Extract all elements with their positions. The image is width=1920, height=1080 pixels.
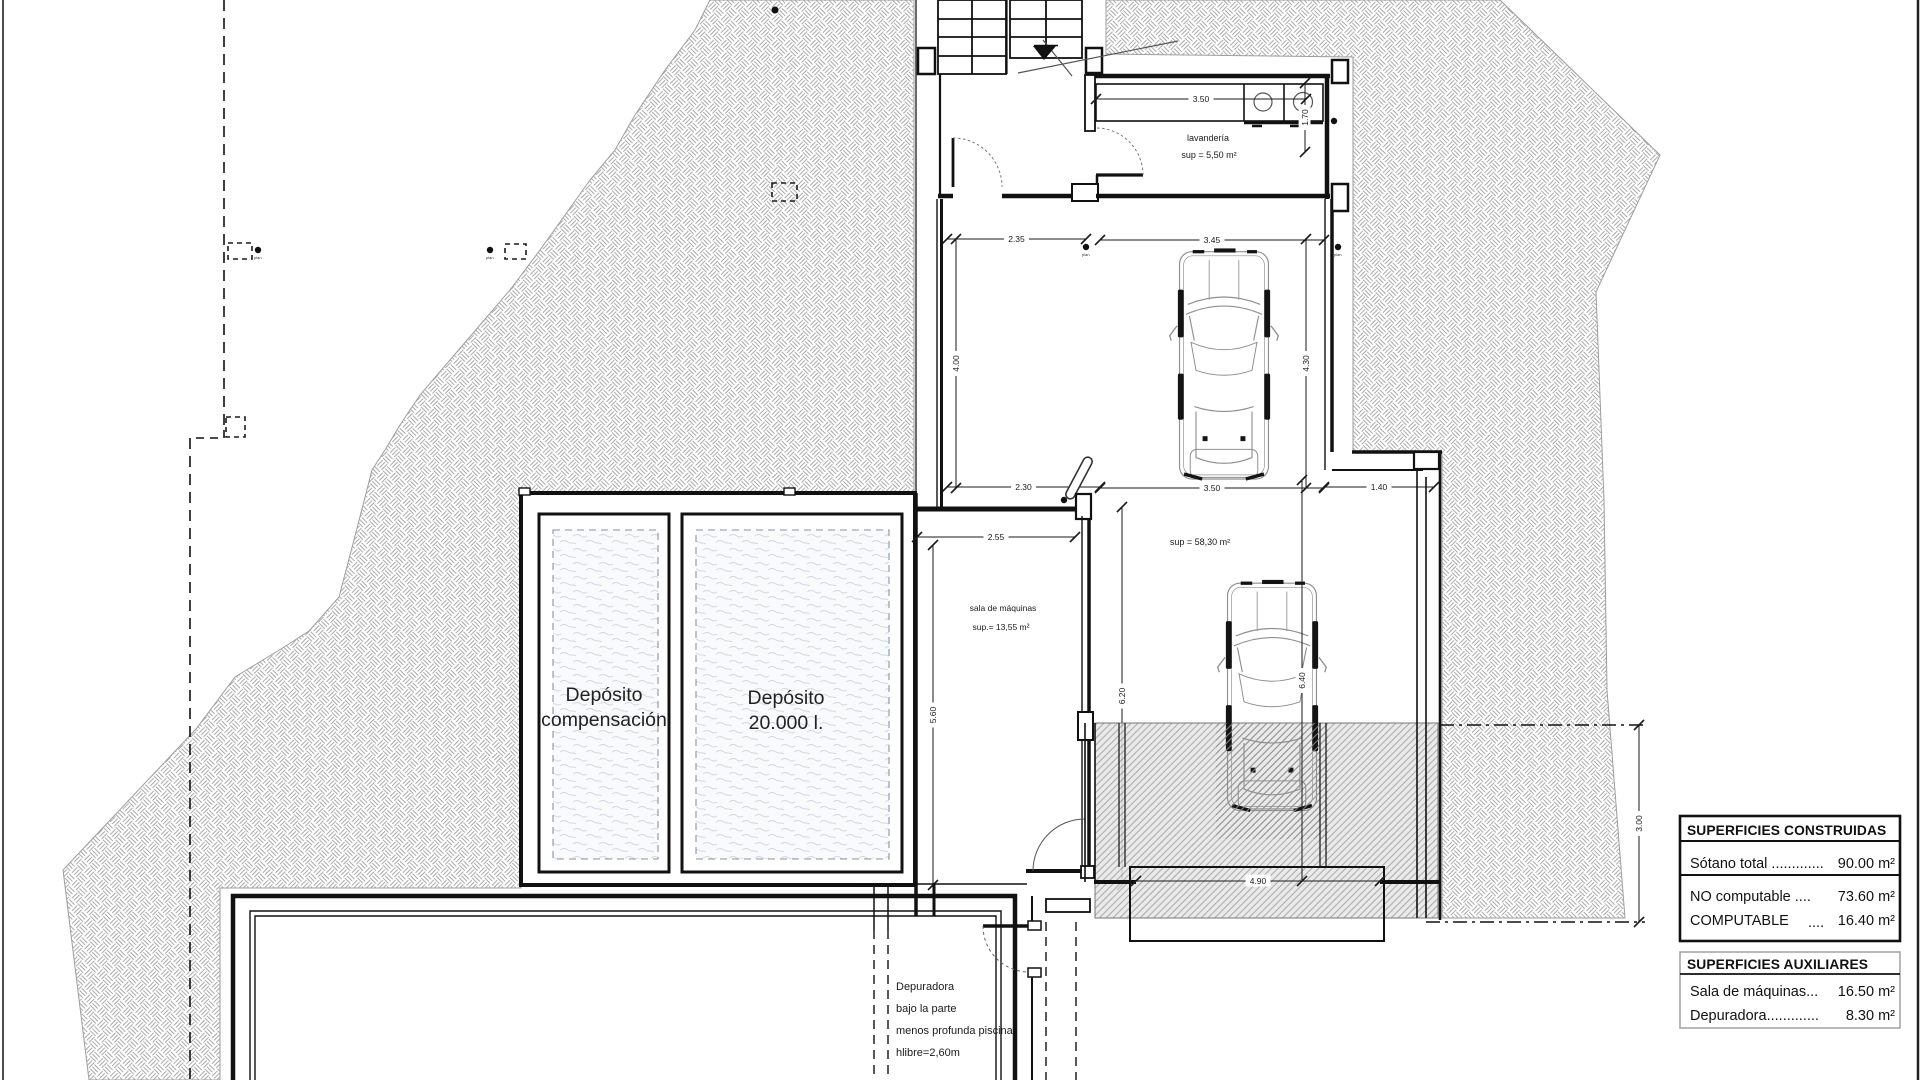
- svg-text:Sala de máquinas...: Sala de máquinas...: [1690, 984, 1818, 1000]
- svg-text:plan: plan: [1334, 252, 1342, 257]
- svg-text:4.00: 4.00: [951, 355, 961, 372]
- svg-text:COMPUTABLE: COMPUTABLE: [1690, 913, 1789, 929]
- svg-text:Depuradora.............: Depuradora.............: [1690, 1008, 1819, 1024]
- svg-text:20.000 l.: 20.000 l.: [749, 712, 824, 734]
- svg-text:Depuradora: Depuradora: [896, 981, 955, 993]
- svg-text:8.30 m²: 8.30 m²: [1846, 1008, 1895, 1024]
- svg-text:5.60: 5.60: [928, 706, 938, 723]
- svg-text:sup = 5,50 m²: sup = 5,50 m²: [1181, 150, 1236, 160]
- svg-text:lavandería: lavandería: [1187, 133, 1229, 143]
- svg-text:6.20: 6.20: [1117, 687, 1127, 704]
- svg-text:compensación: compensación: [541, 709, 667, 731]
- svg-text:plan: plan: [254, 255, 262, 260]
- svg-text:Depósito: Depósito: [566, 684, 643, 706]
- svg-text:hlibre=2,60m: hlibre=2,60m: [896, 1047, 960, 1059]
- svg-text:90.00 m²: 90.00 m²: [1838, 856, 1895, 872]
- svg-text:Sótano total .............: Sótano total .............: [1690, 856, 1824, 872]
- svg-text:16.40 m²: 16.40 m²: [1838, 913, 1895, 929]
- svg-text:6.40: 6.40: [1297, 672, 1307, 689]
- svg-text:2.55: 2.55: [988, 532, 1005, 542]
- svg-text:Depósito: Depósito: [748, 687, 825, 709]
- svg-text:2.30: 2.30: [1015, 482, 1032, 492]
- svg-text:4.90: 4.90: [1250, 876, 1267, 886]
- svg-text:NO computable ....: NO computable ....: [1690, 889, 1811, 905]
- svg-text:1.40: 1.40: [1371, 482, 1388, 492]
- svg-text:SUPERFICIES CONSTRUIDAS: SUPERFICIES CONSTRUIDAS: [1687, 823, 1886, 838]
- svg-text:....: ....: [1808, 915, 1824, 931]
- svg-text:3.45: 3.45: [1204, 235, 1221, 245]
- svg-text:3.50: 3.50: [1193, 94, 1210, 104]
- svg-text:plan: plan: [1082, 252, 1090, 257]
- svg-text:bajo la parte: bajo la parte: [896, 1003, 957, 1015]
- svg-text:3.00: 3.00: [1634, 815, 1644, 832]
- svg-text:sup.= 13,55 m²: sup.= 13,55 m²: [973, 622, 1030, 632]
- svg-text:73.60 m²: 73.60 m²: [1838, 889, 1895, 905]
- svg-text:4.30: 4.30: [1301, 355, 1311, 372]
- svg-text:3.50: 3.50: [1204, 483, 1221, 493]
- svg-text:plan: plan: [486, 255, 494, 260]
- svg-text:menos profunda piscina: menos profunda piscina: [896, 1025, 1014, 1037]
- svg-text:sala de máquinas: sala de máquinas: [970, 603, 1037, 613]
- svg-text:sup = 58,30 m²: sup = 58,30 m²: [1170, 537, 1230, 547]
- svg-text:16.50 m²: 16.50 m²: [1838, 984, 1895, 1000]
- svg-text:2.35: 2.35: [1008, 234, 1025, 244]
- svg-text:1.70: 1.70: [1300, 109, 1310, 126]
- svg-text:SUPERFICIES AUXILIARES: SUPERFICIES AUXILIARES: [1687, 957, 1868, 972]
